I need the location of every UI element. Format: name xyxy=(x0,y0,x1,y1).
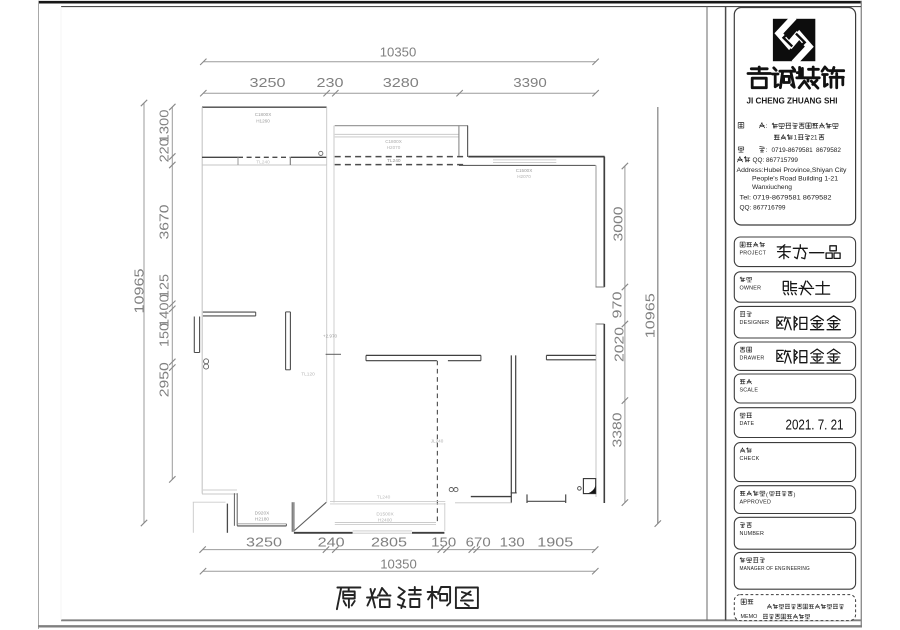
svg-text:Address:Hubei Province,Shiyan: Address:Hubei Province,Shiyan City xyxy=(737,168,847,174)
svg-text:1300: 1300 xyxy=(158,109,172,142)
svg-text:QQ: 867715799: QQ: 867715799 xyxy=(753,157,799,164)
svg-text:TL240: TL240 xyxy=(256,159,270,165)
svg-text:3250: 3250 xyxy=(246,535,282,549)
svg-text:3000: 3000 xyxy=(612,206,626,241)
svg-text:SCALE: SCALE xyxy=(740,388,759,394)
svg-text:8679582: 8679582 xyxy=(816,147,841,154)
svg-text:H1260: H1260 xyxy=(256,119,270,124)
svg-text:): ) xyxy=(794,492,796,498)
svg-text:10350: 10350 xyxy=(380,558,417,572)
svg-text:1905: 1905 xyxy=(537,535,573,549)
svg-text:H2400: H2400 xyxy=(378,517,392,523)
svg-text:2805: 2805 xyxy=(371,535,407,549)
svg-text:Tel: 0719-8679581 8679582: Tel: 0719-8679581 8679582 xyxy=(740,195,833,202)
svg-text:H2070: H2070 xyxy=(387,145,401,150)
svg-text:(: ( xyxy=(766,492,768,498)
svg-text:C1800X: C1800X xyxy=(255,112,272,117)
svg-text::: : xyxy=(766,123,768,130)
svg-text:2021. 7. 21: 2021. 7. 21 xyxy=(786,417,844,433)
svg-text:970: 970 xyxy=(611,291,625,318)
svg-text:TL240: TL240 xyxy=(377,495,391,501)
svg-text:DRAWER: DRAWER xyxy=(740,356,765,362)
svg-text:230: 230 xyxy=(317,76,344,90)
svg-text:150: 150 xyxy=(431,535,456,549)
svg-text:D920X: D920X xyxy=(255,511,270,517)
svg-text:CHECK: CHECK xyxy=(740,456,760,462)
svg-text:3670: 3670 xyxy=(158,204,172,239)
svg-text:MEMO: MEMO xyxy=(741,614,758,620)
svg-text:1400: 1400 xyxy=(158,294,172,327)
svg-text:QQ: 867716799: QQ: 867716799 xyxy=(740,205,787,212)
svg-text:TL120: TL120 xyxy=(301,371,315,377)
svg-text:21: 21 xyxy=(811,135,818,142)
svg-text:+2.970: +2.970 xyxy=(323,334,338,339)
svg-text:150: 150 xyxy=(158,323,172,347)
svg-text:0719-8679581: 0719-8679581 xyxy=(772,147,814,154)
svg-text:DATE: DATE xyxy=(740,421,755,427)
svg-text:MANAGER OF ENGINEERING: MANAGER OF ENGINEERING xyxy=(740,566,810,572)
svg-text:670: 670 xyxy=(466,535,491,549)
svg-text:TL240: TL240 xyxy=(387,158,401,164)
svg-text:240: 240 xyxy=(318,535,345,549)
svg-text:C1800X: C1800X xyxy=(385,139,402,144)
svg-text:OWNER: OWNER xyxy=(740,285,762,291)
svg-text:220: 220 xyxy=(158,138,172,162)
svg-text:3390: 3390 xyxy=(513,76,547,90)
svg-text:1: 1 xyxy=(794,135,798,142)
svg-text:10350: 10350 xyxy=(380,46,417,60)
svg-text:Wanxiucheng: Wanxiucheng xyxy=(752,185,792,191)
svg-text:H2070: H2070 xyxy=(517,174,531,179)
svg-text:130: 130 xyxy=(500,535,525,549)
svg-text:C1500X: C1500X xyxy=(516,168,533,173)
svg-text:NUMBER: NUMBER xyxy=(740,531,765,537)
svg-text:2020: 2020 xyxy=(613,327,627,362)
svg-text:3250: 3250 xyxy=(250,76,286,90)
svg-text:D1500X: D1500X xyxy=(376,512,394,518)
svg-text:3280: 3280 xyxy=(383,76,419,90)
svg-text:People's Road Building 1-21: People's Road Building 1-21 xyxy=(752,177,839,183)
svg-text:10965: 10965 xyxy=(132,268,146,313)
svg-text:3380: 3380 xyxy=(611,412,625,447)
svg-text:APPROVED: APPROVED xyxy=(740,500,772,506)
svg-text:H2180: H2180 xyxy=(255,517,269,523)
svg-text:JI CHENG ZHUANG SHI: JI CHENG ZHUANG SHI xyxy=(747,97,838,106)
svg-text:PROJECT: PROJECT xyxy=(740,251,767,257)
svg-text::: : xyxy=(766,147,768,154)
svg-text:JL240: JL240 xyxy=(431,439,444,444)
svg-text:DESIGNER: DESIGNER xyxy=(740,320,770,326)
svg-text:2950: 2950 xyxy=(158,362,172,397)
svg-text:10965: 10965 xyxy=(643,293,657,338)
